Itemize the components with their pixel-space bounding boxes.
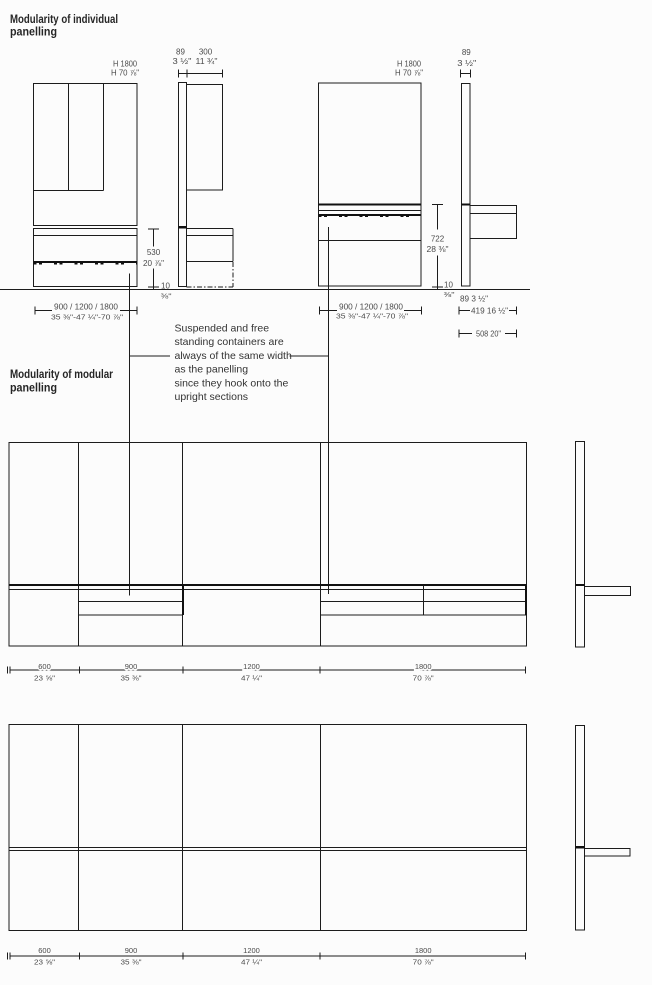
svg-text:600: 600 [38,662,51,671]
svg-text:35 ⅜": 35 ⅜" [121,957,142,966]
svg-text:upright sections: upright sections [175,391,249,403]
svg-text:H 70 ⅞": H 70 ⅞" [111,68,139,77]
svg-text:89: 89 [176,47,185,56]
svg-text:H 1800: H 1800 [397,59,422,68]
svg-text:panelling: panelling [10,383,57,395]
svg-text:300: 300 [199,47,213,56]
svg-text:always of the same width: always of the same width [175,350,292,362]
svg-text:H 1800: H 1800 [113,59,138,68]
svg-text:10: 10 [444,281,453,290]
svg-text:3 ½": 3 ½" [457,59,476,68]
svg-text:35 ⅜"-47 ¼"-70 ⅞": 35 ⅜"-47 ¼"-70 ⅞" [336,311,408,320]
svg-text:⅜": ⅜" [444,290,455,299]
svg-text:47 ¼": 47 ¼" [241,673,262,682]
svg-text:since they hook onto the: since they hook onto the [175,377,289,389]
svg-text:1800: 1800 [415,662,432,671]
svg-text:⅜": ⅜" [161,291,172,300]
svg-text:standing containers are: standing containers are [175,336,284,348]
svg-text:89: 89 [462,48,471,57]
svg-text:panelling: panelling [10,27,57,39]
svg-text:as the panelling: as the panelling [175,364,249,376]
svg-text:Suspended and free: Suspended and free [175,323,270,335]
svg-text:47 ¼": 47 ¼" [241,957,262,966]
svg-text:11 ¾": 11 ¾" [196,57,218,66]
svg-text:Modularity of individual: Modularity of individual [10,14,118,26]
svg-text:900: 900 [125,662,138,671]
svg-text:900 / 1200 / 1800: 900 / 1200 / 1800 [339,302,404,311]
svg-text:89 3 ½": 89 3 ½" [460,294,488,303]
svg-text:70 ⅞": 70 ⅞" [413,957,434,966]
svg-text:600: 600 [38,946,51,955]
svg-text:Modularity of modular: Modularity of modular [10,369,113,381]
svg-text:900: 900 [125,946,138,955]
svg-text:23 ⅝": 23 ⅝" [34,957,55,966]
svg-text:3 ½": 3 ½" [173,57,192,66]
svg-text:28 ⅜": 28 ⅜" [427,245,449,254]
svg-text:508 20": 508 20" [476,329,501,338]
svg-text:1800: 1800 [415,946,432,955]
svg-text:70 ⅞": 70 ⅞" [413,673,434,682]
svg-text:419 16 ½": 419 16 ½" [471,307,508,316]
svg-text:23 ⅝": 23 ⅝" [34,673,55,682]
svg-text:35 ⅜"-47 ¼"-70 ⅞": 35 ⅜"-47 ¼"-70 ⅞" [51,312,123,321]
svg-text:H 70 ⅞": H 70 ⅞" [395,68,423,77]
svg-text:722: 722 [431,234,445,243]
svg-text:1200: 1200 [243,662,260,671]
svg-text:1200: 1200 [243,946,260,955]
svg-text:900 / 1200 / 1800: 900 / 1200 / 1800 [54,302,119,311]
svg-text:20 ⅞": 20 ⅞" [143,259,164,268]
svg-text:530: 530 [147,248,161,257]
svg-text:35 ⅜": 35 ⅜" [121,673,142,682]
